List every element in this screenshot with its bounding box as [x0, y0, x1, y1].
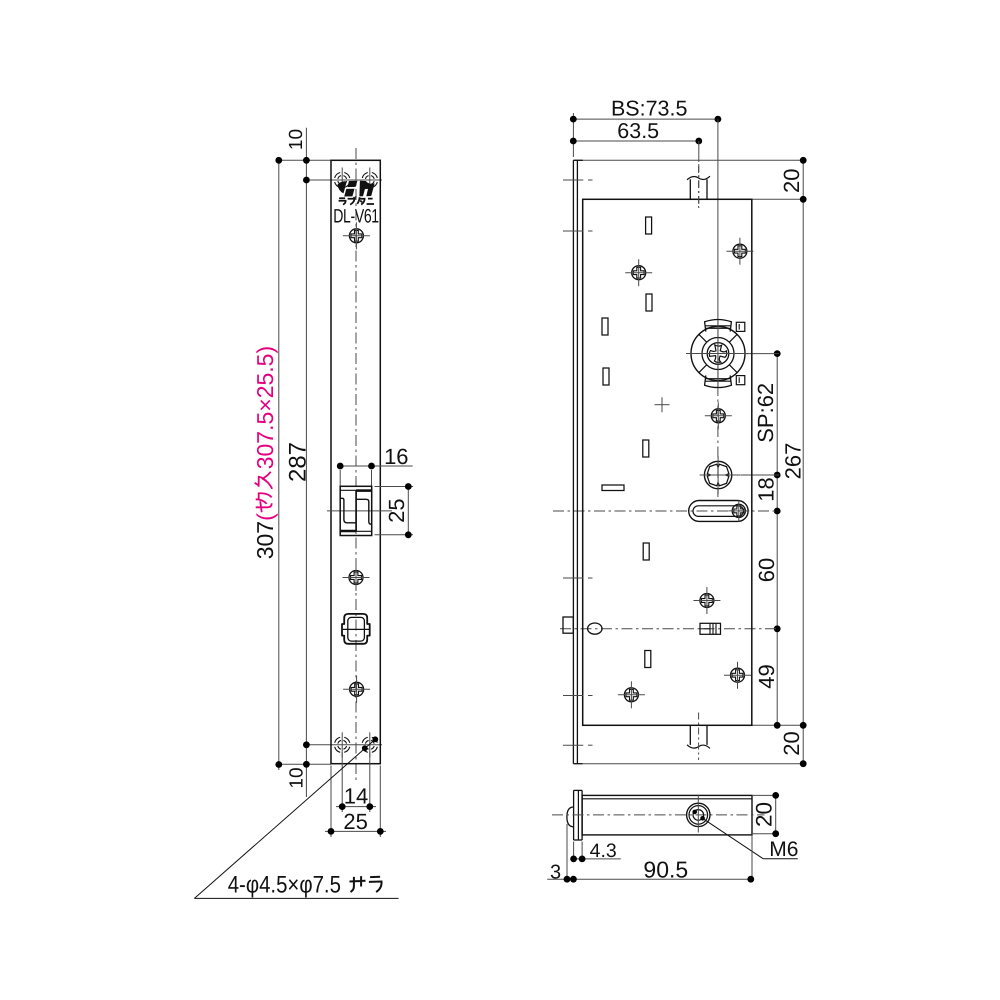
svg-text:BS:73.5: BS:73.5	[611, 97, 688, 121]
svg-text:10: 10	[286, 129, 307, 150]
svg-text:49: 49	[754, 664, 779, 688]
svg-text:18: 18	[754, 477, 779, 501]
svg-text:63.5: 63.5	[617, 119, 659, 143]
svg-text:14: 14	[344, 784, 368, 809]
svg-text:3: 3	[550, 861, 561, 883]
svg-text:M6: M6	[769, 838, 798, 861]
svg-text:4-φ4.5×φ7.5: 4-φ4.5×φ7.5	[228, 872, 341, 899]
svg-text:287: 287	[284, 442, 311, 482]
svg-text:307.5×25.5): 307.5×25.5)	[252, 346, 278, 469]
svg-text:25: 25	[343, 809, 367, 834]
svg-text:16: 16	[384, 444, 408, 469]
svg-text:SP:62: SP:62	[753, 383, 778, 443]
svg-text:4.3: 4.3	[590, 840, 617, 862]
svg-text:307: 307	[252, 521, 278, 559]
svg-text:10: 10	[286, 767, 307, 788]
svg-text:(: (	[252, 513, 278, 521]
svg-text:267: 267	[781, 443, 806, 480]
svg-text:20: 20	[779, 731, 804, 755]
svg-text:60: 60	[754, 558, 779, 582]
svg-text:20: 20	[752, 802, 777, 827]
svg-text:20: 20	[779, 169, 804, 193]
svg-text:90.5: 90.5	[643, 857, 688, 883]
